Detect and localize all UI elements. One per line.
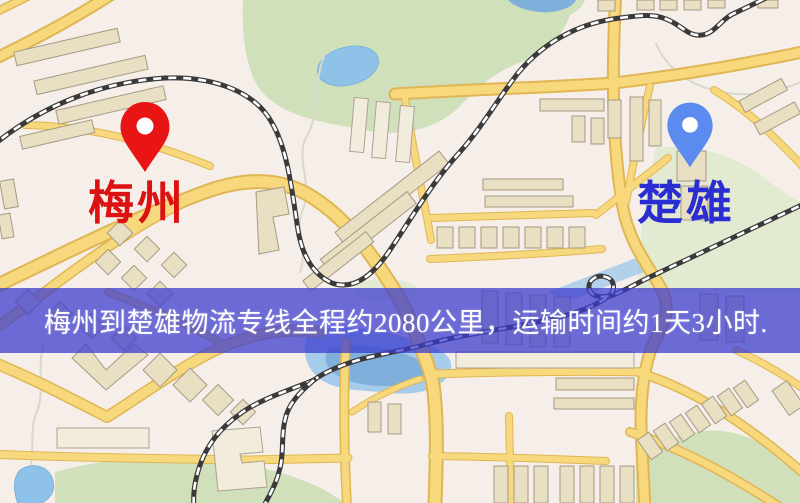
origin-pin-hole bbox=[137, 118, 154, 135]
basemap bbox=[0, 0, 800, 503]
destination-label: 楚雄 bbox=[637, 181, 735, 227]
map-view[interactable]: 梅州 楚雄 梅州到楚雄物流专线全程约2080公里，运输时间约1天3小时. bbox=[0, 0, 800, 503]
origin-label: 梅州 bbox=[88, 181, 186, 227]
route-info-banner: 梅州到楚雄物流专线全程约2080公里，运输时间约1天3小时. bbox=[0, 288, 800, 353]
destination-pin-hole bbox=[682, 117, 698, 133]
origin-pin-shape bbox=[121, 102, 170, 172]
destination-pin-shape bbox=[667, 103, 712, 168]
route-info-text: 梅州到楚雄物流专线全程约2080公里，运输时间约1天3小时. bbox=[0, 301, 768, 340]
origin-pin-icon[interactable] bbox=[115, 97, 175, 177]
destination-pin-icon[interactable] bbox=[662, 98, 718, 172]
